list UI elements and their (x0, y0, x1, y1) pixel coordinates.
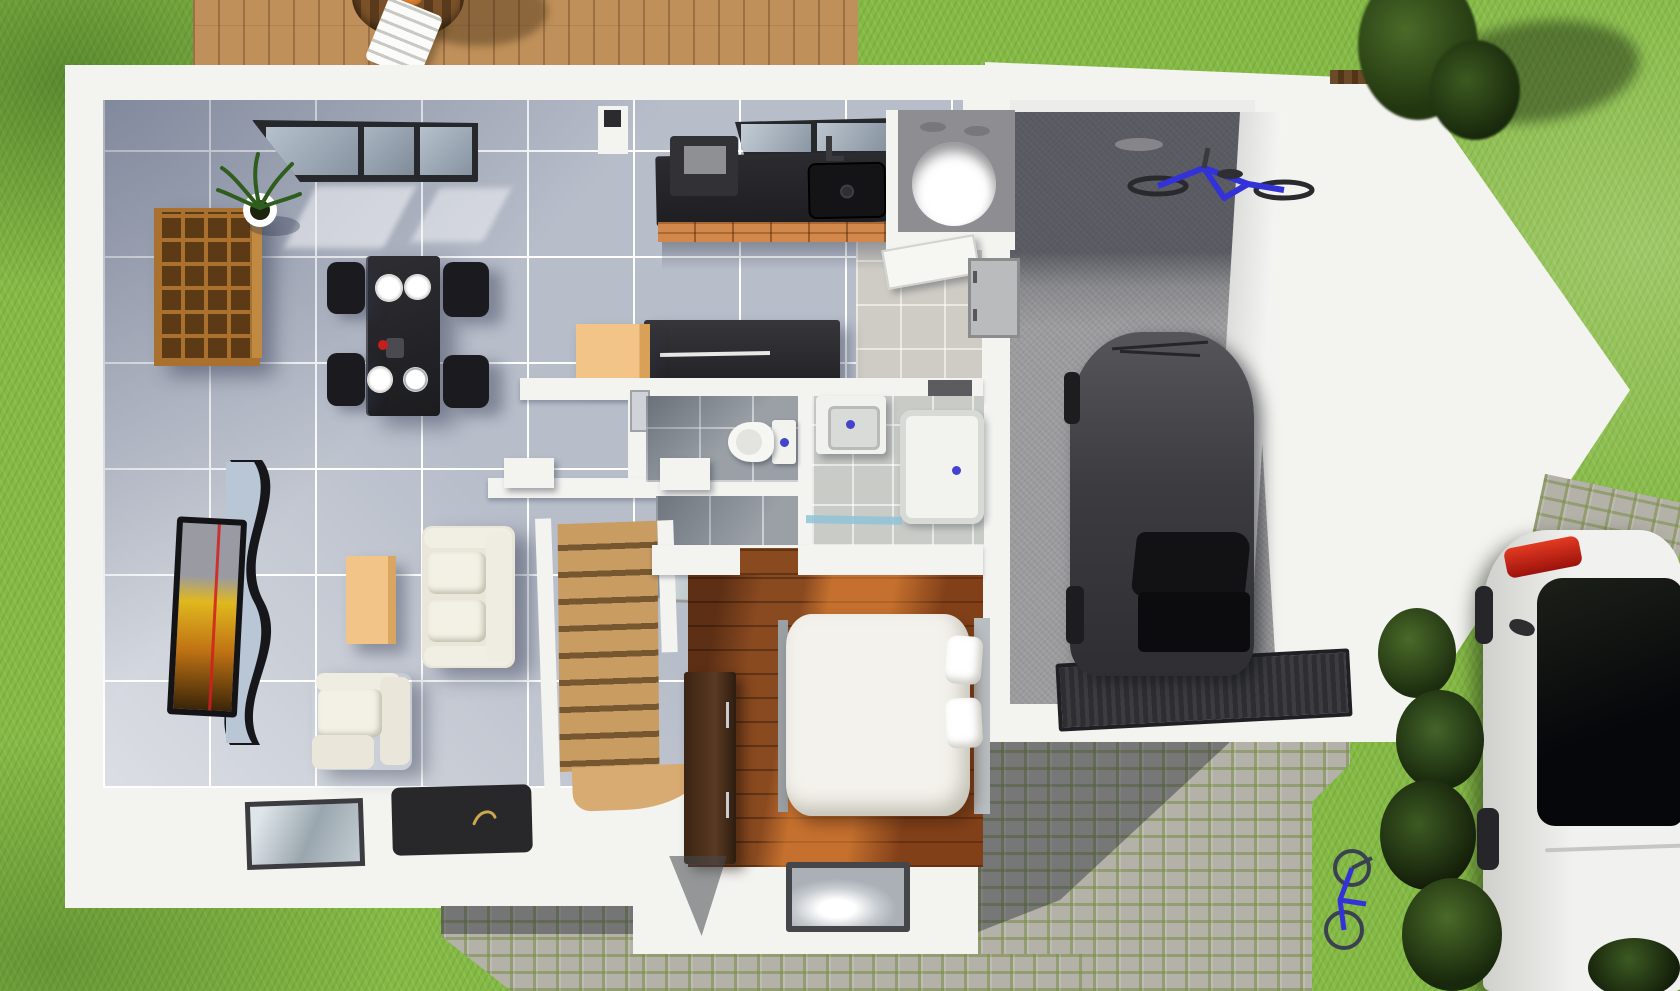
kitchen-faucet-arm (826, 156, 844, 161)
car-wheel (1066, 586, 1084, 644)
wc-storage-cube (660, 458, 710, 490)
tree (1430, 40, 1520, 140)
water-heater-cylinder (912, 142, 996, 226)
garage-ceiling-edge (1010, 100, 1255, 112)
car-windshield (1131, 532, 1252, 596)
wardrobe-handle (726, 792, 729, 818)
hedge-bush (1402, 878, 1502, 991)
door-handle (973, 309, 977, 321)
wardrobe-handle (726, 702, 729, 728)
wardrobe (684, 672, 736, 864)
door-handle (973, 271, 977, 283)
hedge-bush (1396, 690, 1484, 790)
sofa-cushion (428, 600, 486, 642)
car-rear-window (1537, 578, 1680, 826)
parked-white-car (1475, 516, 1680, 991)
dining-chair (443, 262, 489, 317)
shower-glass-screen (806, 515, 902, 525)
dining-chair (443, 355, 489, 408)
door-mat (391, 784, 533, 856)
bed (778, 612, 990, 818)
kitchen-counter-shadow (662, 240, 902, 270)
glass-pane (741, 124, 811, 152)
coffee-machine-top (684, 146, 726, 174)
pillow (944, 635, 983, 685)
tv-picture-stripe (208, 524, 221, 710)
shower-tray (900, 410, 984, 524)
bedroom-window (786, 862, 910, 932)
plate (403, 367, 428, 392)
garage-bicycle (1126, 146, 1316, 208)
sofa (422, 526, 515, 668)
stairhead-cabinet (504, 458, 554, 488)
ceiling-spot (964, 126, 990, 136)
car-wheel (1477, 808, 1499, 870)
car-wheel (1475, 586, 1493, 644)
potted-plant (214, 148, 306, 240)
stair-treads (551, 521, 666, 773)
shower-drain (952, 466, 961, 475)
deck (193, 0, 858, 67)
car-roof (1138, 592, 1250, 652)
coffee-machine (670, 136, 738, 196)
vanity-basin (828, 406, 880, 450)
plate (404, 274, 431, 300)
kids-bicycle (1314, 842, 1384, 957)
toilet-seat (736, 429, 762, 455)
vase-flower (378, 340, 388, 350)
bed-mattress (786, 614, 970, 816)
glass-pane (420, 127, 472, 175)
bedroom-door-threshold (740, 548, 798, 575)
floor-window (245, 798, 365, 870)
dining-chair (327, 262, 365, 314)
table-vase (386, 338, 404, 358)
garage-door-from-hall (968, 258, 1020, 338)
beige-cabinet (576, 324, 650, 382)
glass-pane (364, 127, 414, 175)
toilet (728, 416, 798, 468)
corner-bush (1588, 938, 1680, 991)
car-wheel (1064, 372, 1080, 424)
plate (375, 274, 403, 302)
sofa-cushion (428, 552, 486, 594)
garden-path-shadow (441, 906, 633, 934)
sofa-back (486, 532, 512, 662)
armchair (312, 673, 412, 770)
plate (367, 366, 393, 393)
pillow (945, 697, 984, 749)
ceiling-spot (920, 122, 946, 132)
coffee-table (346, 556, 396, 644)
basin-drain (846, 420, 855, 429)
floorplan-render (0, 0, 1680, 991)
bedroom-top-wall (652, 545, 983, 575)
hedge-bush (1378, 608, 1456, 698)
dining-chair (327, 353, 365, 406)
stair-stringer-right (657, 520, 678, 652)
garage-car (1070, 326, 1256, 682)
utility-room-wall-left (886, 110, 898, 250)
armchair-back (380, 677, 410, 765)
utility-room (896, 110, 1015, 242)
armchair-ottoman (312, 735, 374, 769)
kitchen-base-cabinets (658, 222, 892, 242)
flush-button (780, 438, 789, 447)
shoehorn-icon (472, 807, 499, 828)
armchair-seat (318, 689, 382, 737)
tv-screen (167, 516, 247, 717)
bathroom-vanity (816, 396, 886, 454)
wall-stub-cap (604, 110, 621, 127)
hedge-bush (1380, 780, 1476, 890)
